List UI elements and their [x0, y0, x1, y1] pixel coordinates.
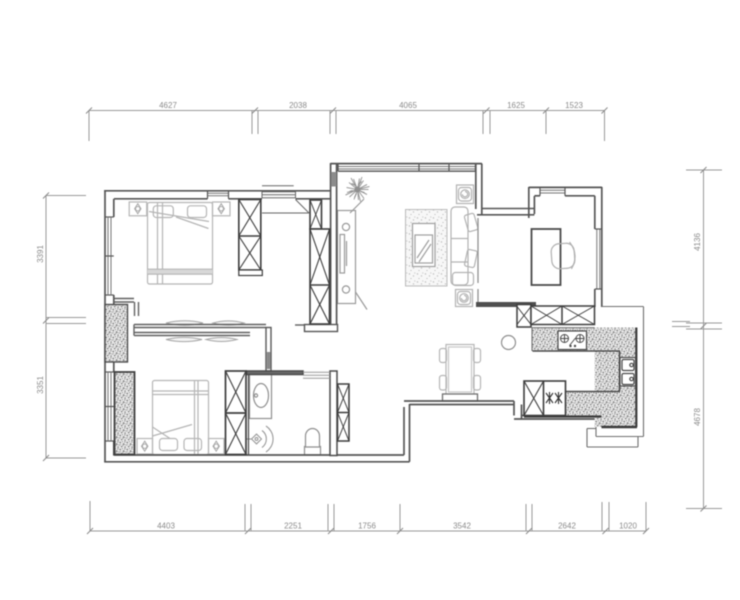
svg-text:4065: 4065 [399, 101, 417, 110]
svg-text:1756: 1756 [358, 522, 376, 531]
svg-text:4627: 4627 [159, 101, 177, 110]
svg-text:2251: 2251 [284, 522, 302, 531]
svg-text:4678: 4678 [693, 408, 702, 426]
svg-text:2038: 2038 [289, 101, 307, 110]
svg-text:4136: 4136 [693, 233, 702, 251]
svg-text:4403: 4403 [157, 522, 175, 531]
svg-text:1020: 1020 [619, 522, 637, 531]
svg-text:1523: 1523 [565, 101, 583, 110]
svg-text:1625: 1625 [507, 101, 525, 110]
svg-text:3391: 3391 [36, 245, 45, 263]
svg-text:3542: 3542 [453, 522, 471, 531]
svg-text:3351: 3351 [36, 376, 45, 394]
svg-text:2642: 2642 [558, 522, 576, 531]
